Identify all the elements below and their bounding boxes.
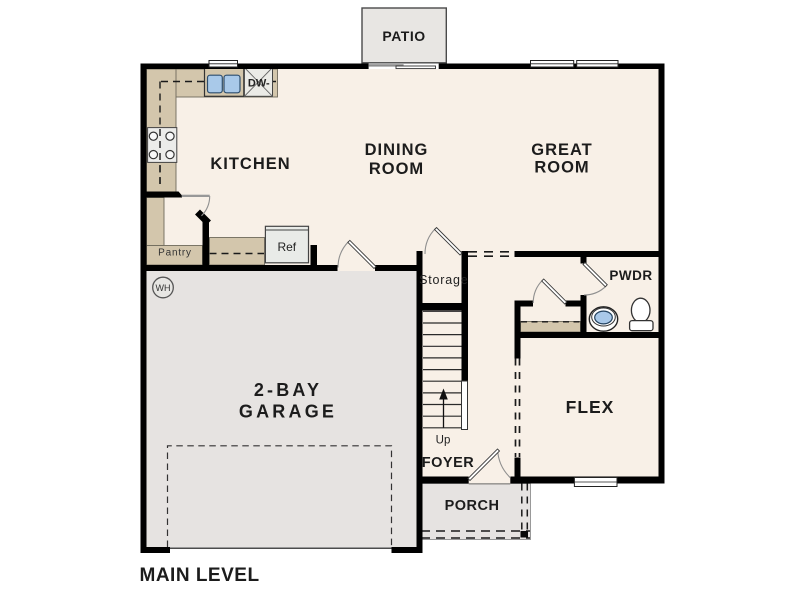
svg-text:PATIO: PATIO [382, 28, 425, 44]
svg-text:FLEX: FLEX [566, 397, 615, 417]
svg-text:KITCHEN: KITCHEN [210, 155, 290, 173]
svg-text:MAIN LEVEL: MAIN LEVEL [140, 565, 260, 586]
svg-text:ROOM: ROOM [534, 159, 589, 177]
svg-text:PWDR: PWDR [609, 268, 652, 283]
svg-text:Ref: Ref [277, 240, 296, 254]
svg-text:2-BAY: 2-BAY [254, 380, 322, 400]
svg-text:DW-: DW- [248, 78, 270, 90]
svg-text:ROOM: ROOM [369, 160, 424, 178]
svg-text:GREAT: GREAT [531, 141, 593, 159]
svg-text:GARAGE: GARAGE [239, 402, 337, 422]
svg-text:Up: Up [436, 435, 451, 447]
svg-text:Pantry: Pantry [158, 248, 192, 259]
svg-text:WH: WH [156, 283, 171, 293]
svg-text:FOYER: FOYER [422, 455, 474, 471]
svg-text:DINING: DINING [365, 141, 429, 159]
svg-text:PORCH: PORCH [445, 498, 500, 514]
svg-text:Storage: Storage [419, 273, 468, 287]
